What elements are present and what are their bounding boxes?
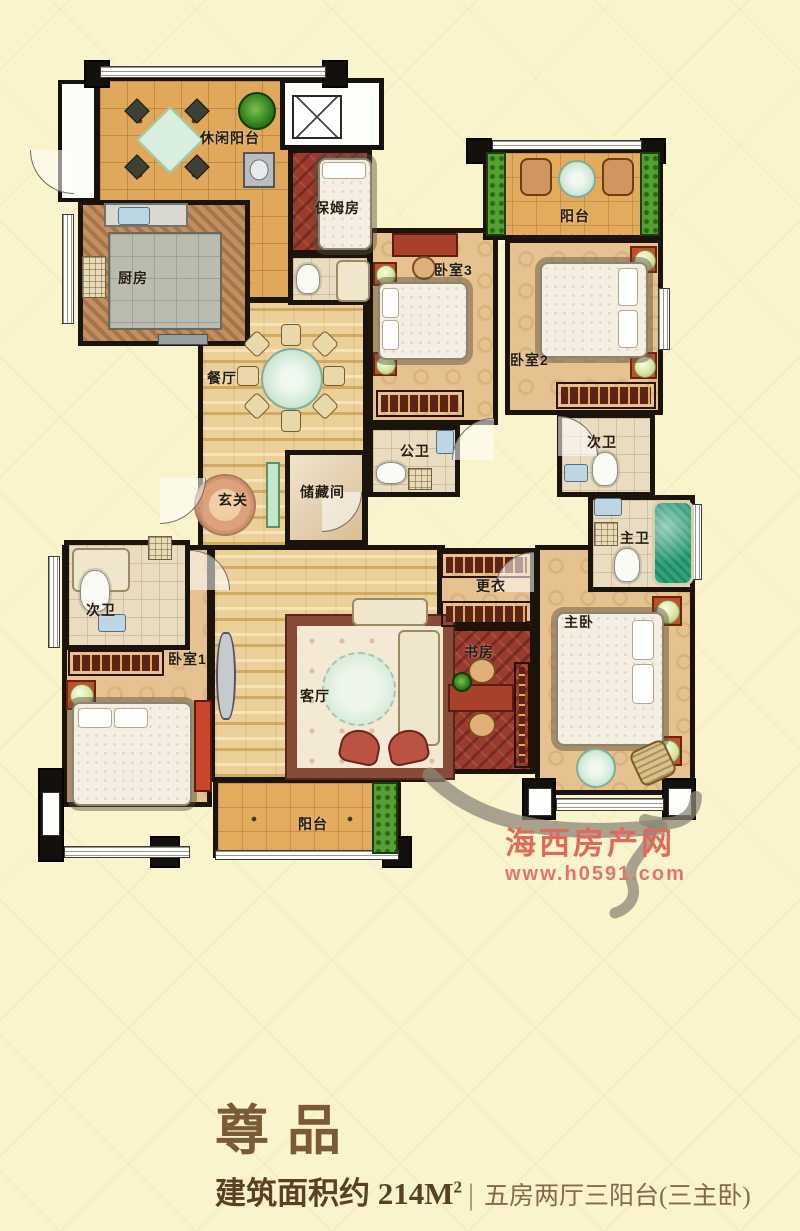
room-label-kitchen: 厨房 xyxy=(118,268,148,288)
room-label-balcony-bottom: 阳台 xyxy=(298,814,328,834)
desk-chair xyxy=(412,256,436,280)
chair xyxy=(323,366,345,386)
pillow xyxy=(114,708,148,728)
chair xyxy=(281,324,301,346)
balcony-table xyxy=(558,160,596,198)
pillow xyxy=(322,162,366,179)
watermark: 海西房产网 www.h0591.com xyxy=(505,818,686,886)
pier-window xyxy=(42,792,60,836)
area-value: 214M xyxy=(378,1176,454,1211)
rug-center-medallion xyxy=(322,652,396,726)
room-label-master-bedroom: 主卧 xyxy=(564,612,594,632)
washer-door xyxy=(250,159,269,180)
wardrobe xyxy=(68,650,164,676)
desk xyxy=(392,233,458,257)
window xyxy=(48,556,60,648)
sink xyxy=(436,430,454,454)
shoe-cabinet xyxy=(266,462,280,528)
pillow xyxy=(632,664,654,704)
room-label-dining: 餐厅 xyxy=(207,368,237,388)
pillow xyxy=(382,288,399,318)
toilet xyxy=(296,264,320,294)
elevator-icon xyxy=(292,95,342,139)
room-label-study: 书房 xyxy=(464,642,494,662)
wardrobe xyxy=(441,601,532,627)
wardrobe xyxy=(556,382,656,409)
sink xyxy=(594,498,622,516)
washstand xyxy=(594,522,618,546)
stove xyxy=(82,256,106,298)
pillow xyxy=(382,320,399,350)
room-label-leisure-balcony: 休闲阳台 xyxy=(200,128,260,148)
area-text: 建筑面积约 214M2 xyxy=(215,1168,462,1213)
room-label-public-bath: 公卫 xyxy=(400,441,430,461)
sink xyxy=(564,464,588,482)
rattan-chair xyxy=(602,158,634,196)
balcony-door xyxy=(30,150,74,194)
dining-table xyxy=(261,348,323,410)
plan-title: 尊品 xyxy=(215,1086,359,1165)
washstand xyxy=(408,468,432,490)
planter xyxy=(640,152,660,236)
area-prefix: 建筑面积约 xyxy=(215,1176,378,1211)
pillow xyxy=(632,620,654,660)
room-label-nanny: 保姆房 xyxy=(315,198,360,218)
window xyxy=(658,288,670,350)
tv-wall xyxy=(194,700,212,792)
room-label-bedroom-1: 卧室1 xyxy=(168,649,207,669)
pillow xyxy=(618,268,638,306)
wardrobe xyxy=(376,390,464,417)
kitchen-sliding-door xyxy=(158,334,208,345)
planter xyxy=(486,152,506,236)
toilet xyxy=(592,452,618,486)
room-label-living: 客厅 xyxy=(300,686,330,706)
tv-stand xyxy=(216,632,236,720)
layout-description: 五房两厅三阳台(三主卧) xyxy=(484,1176,751,1212)
room-label-dressing: 更衣 xyxy=(476,576,506,596)
washstand xyxy=(148,536,172,560)
kitchen-sink xyxy=(118,207,150,225)
sofa-bench xyxy=(352,598,428,626)
window xyxy=(100,66,326,78)
window xyxy=(62,214,74,324)
bathtub xyxy=(652,500,694,586)
window xyxy=(492,140,642,150)
chair xyxy=(237,366,259,386)
plant-icon xyxy=(238,92,276,130)
room-label-bedroom-2: 卧室2 xyxy=(510,350,549,370)
plan-specs: 建筑面积约 214M2 | 五房两厅三阳台(三主卧) xyxy=(215,1168,751,1213)
rattan-chair xyxy=(520,158,552,196)
area-superscript: 2 xyxy=(454,1178,463,1197)
toilet xyxy=(376,462,406,484)
sofa xyxy=(398,630,440,746)
room-label-bedroom-3: 卧室3 xyxy=(434,260,473,280)
chair xyxy=(281,410,301,432)
plant-icon xyxy=(452,672,472,692)
washing-machine xyxy=(243,152,275,188)
watermark-site-url: www.h0591.com xyxy=(505,863,686,886)
room-label-foyer: 玄关 xyxy=(218,490,248,510)
divider: | xyxy=(468,1178,474,1212)
planter xyxy=(372,782,398,854)
room-label-balcony-top: 阳台 xyxy=(560,206,590,226)
window xyxy=(64,846,190,858)
room-label-bath-right: 次卫 xyxy=(587,432,617,452)
pillow xyxy=(618,310,638,348)
pillow xyxy=(78,708,112,728)
lamp-icon xyxy=(634,356,656,378)
room-label-storage: 储藏间 xyxy=(300,482,345,502)
room-label-master-bath: 主卫 xyxy=(620,528,650,548)
shower-tray xyxy=(336,260,370,302)
room-label-bath-left: 次卫 xyxy=(86,600,116,620)
watermark-site-name: 海西房产网 xyxy=(505,818,686,863)
toilet xyxy=(614,548,640,582)
